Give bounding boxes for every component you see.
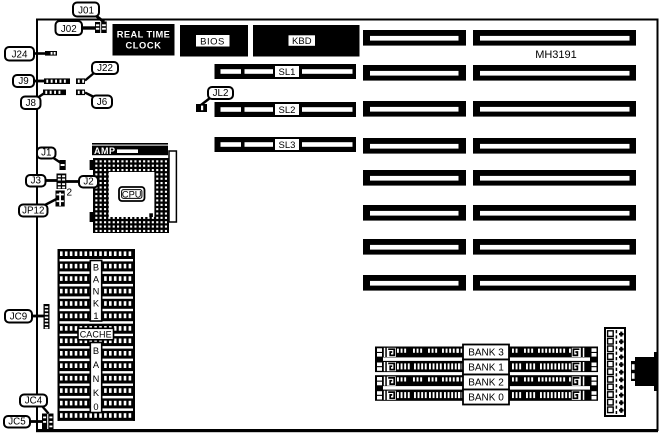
svg-text:N: N <box>93 374 100 384</box>
svg-text:KBD: KBD <box>292 36 312 47</box>
svg-text:JP12: JP12 <box>22 206 44 217</box>
svg-text:J01: J01 <box>78 6 94 17</box>
svg-text:CACHE: CACHE <box>80 330 112 340</box>
svg-text:2: 2 <box>67 188 73 199</box>
svg-text:BANK 0: BANK 0 <box>468 393 504 404</box>
svg-text:J02: J02 <box>61 24 77 35</box>
svg-text:BANK 1: BANK 1 <box>468 363 504 374</box>
svg-text:K: K <box>93 299 100 309</box>
svg-text:J22: J22 <box>97 63 113 74</box>
svg-text:J2: J2 <box>83 177 93 188</box>
svg-text:JL2: JL2 <box>213 88 229 99</box>
svg-text:CLOCK: CLOCK <box>125 41 161 51</box>
svg-text:SL1: SL1 <box>279 67 296 78</box>
svg-text:0: 0 <box>93 402 98 412</box>
svg-text:CPU: CPU <box>122 189 142 199</box>
svg-text:N: N <box>93 287 100 297</box>
svg-text:K: K <box>93 388 100 398</box>
svg-text:BIOS: BIOS <box>200 36 225 47</box>
svg-text:A: A <box>93 360 100 370</box>
svg-text:J3: J3 <box>31 176 42 187</box>
svg-text:J24: J24 <box>12 50 28 61</box>
svg-text:A: A <box>93 275 100 285</box>
svg-text:JC5: JC5 <box>8 417 26 428</box>
svg-text:J1: J1 <box>41 148 51 159</box>
svg-text:REAL TIME: REAL TIME <box>117 30 171 40</box>
svg-text:JC9: JC9 <box>10 312 27 323</box>
svg-text:B: B <box>93 346 99 356</box>
svg-text:B: B <box>93 262 99 272</box>
svg-text:J8: J8 <box>26 98 37 109</box>
svg-text:J6: J6 <box>97 97 108 108</box>
svg-text:SL3: SL3 <box>279 140 296 151</box>
svg-text:BANK 3: BANK 3 <box>468 348 504 359</box>
svg-text:J9: J9 <box>18 76 28 87</box>
svg-text:SL2: SL2 <box>279 105 296 116</box>
svg-text:1: 1 <box>93 311 98 321</box>
svg-text:JC4: JC4 <box>25 396 43 407</box>
svg-text:AMP: AMP <box>94 146 116 156</box>
svg-text:BANK 2: BANK 2 <box>468 378 504 389</box>
svg-text:MH3191: MH3191 <box>535 49 577 61</box>
